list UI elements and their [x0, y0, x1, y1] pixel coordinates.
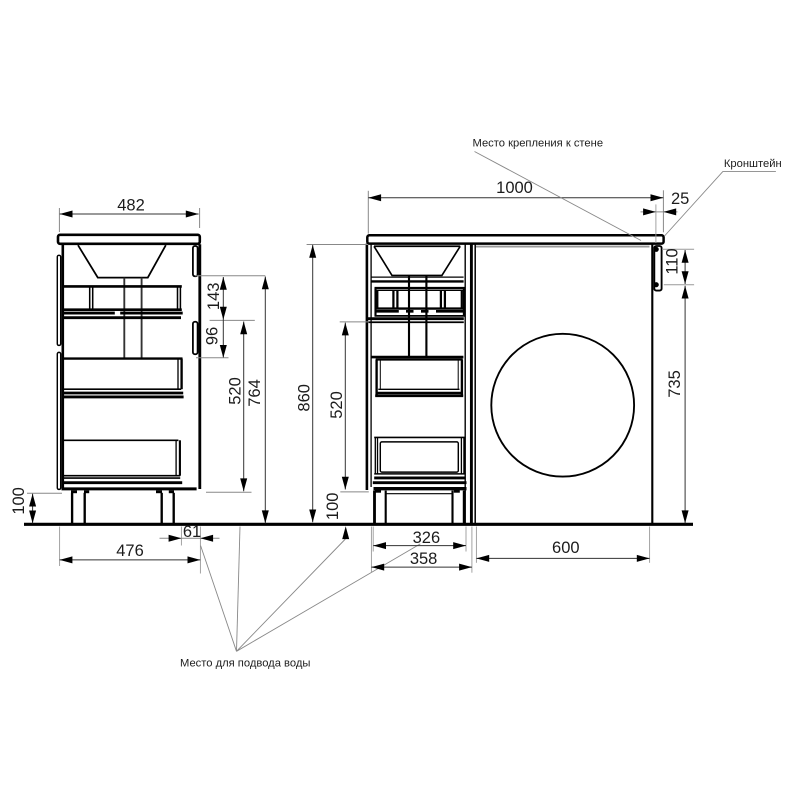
svg-text:143: 143 — [205, 283, 223, 311]
svg-text:482: 482 — [117, 197, 145, 215]
svg-text:764: 764 — [246, 379, 264, 407]
svg-text:Место крепления к стене: Место крепления к стене — [473, 137, 604, 149]
svg-text:Место для подвода воды: Место для подвода воды — [180, 658, 310, 670]
svg-text:326: 326 — [413, 529, 441, 547]
svg-text:61: 61 — [183, 523, 201, 541]
svg-text:520: 520 — [226, 377, 244, 405]
svg-text:Кронштейн: Кронштейн — [724, 158, 782, 170]
svg-text:600: 600 — [552, 539, 580, 557]
svg-text:100: 100 — [324, 493, 342, 521]
svg-text:476: 476 — [116, 542, 144, 560]
svg-text:358: 358 — [410, 550, 438, 568]
svg-text:860: 860 — [296, 384, 314, 412]
svg-text:735: 735 — [666, 370, 684, 398]
svg-text:110: 110 — [664, 248, 682, 274]
svg-text:100: 100 — [10, 487, 28, 515]
svg-text:96: 96 — [204, 327, 222, 345]
svg-text:520: 520 — [328, 391, 346, 419]
svg-text:1000: 1000 — [496, 179, 533, 197]
svg-text:25: 25 — [671, 190, 689, 208]
